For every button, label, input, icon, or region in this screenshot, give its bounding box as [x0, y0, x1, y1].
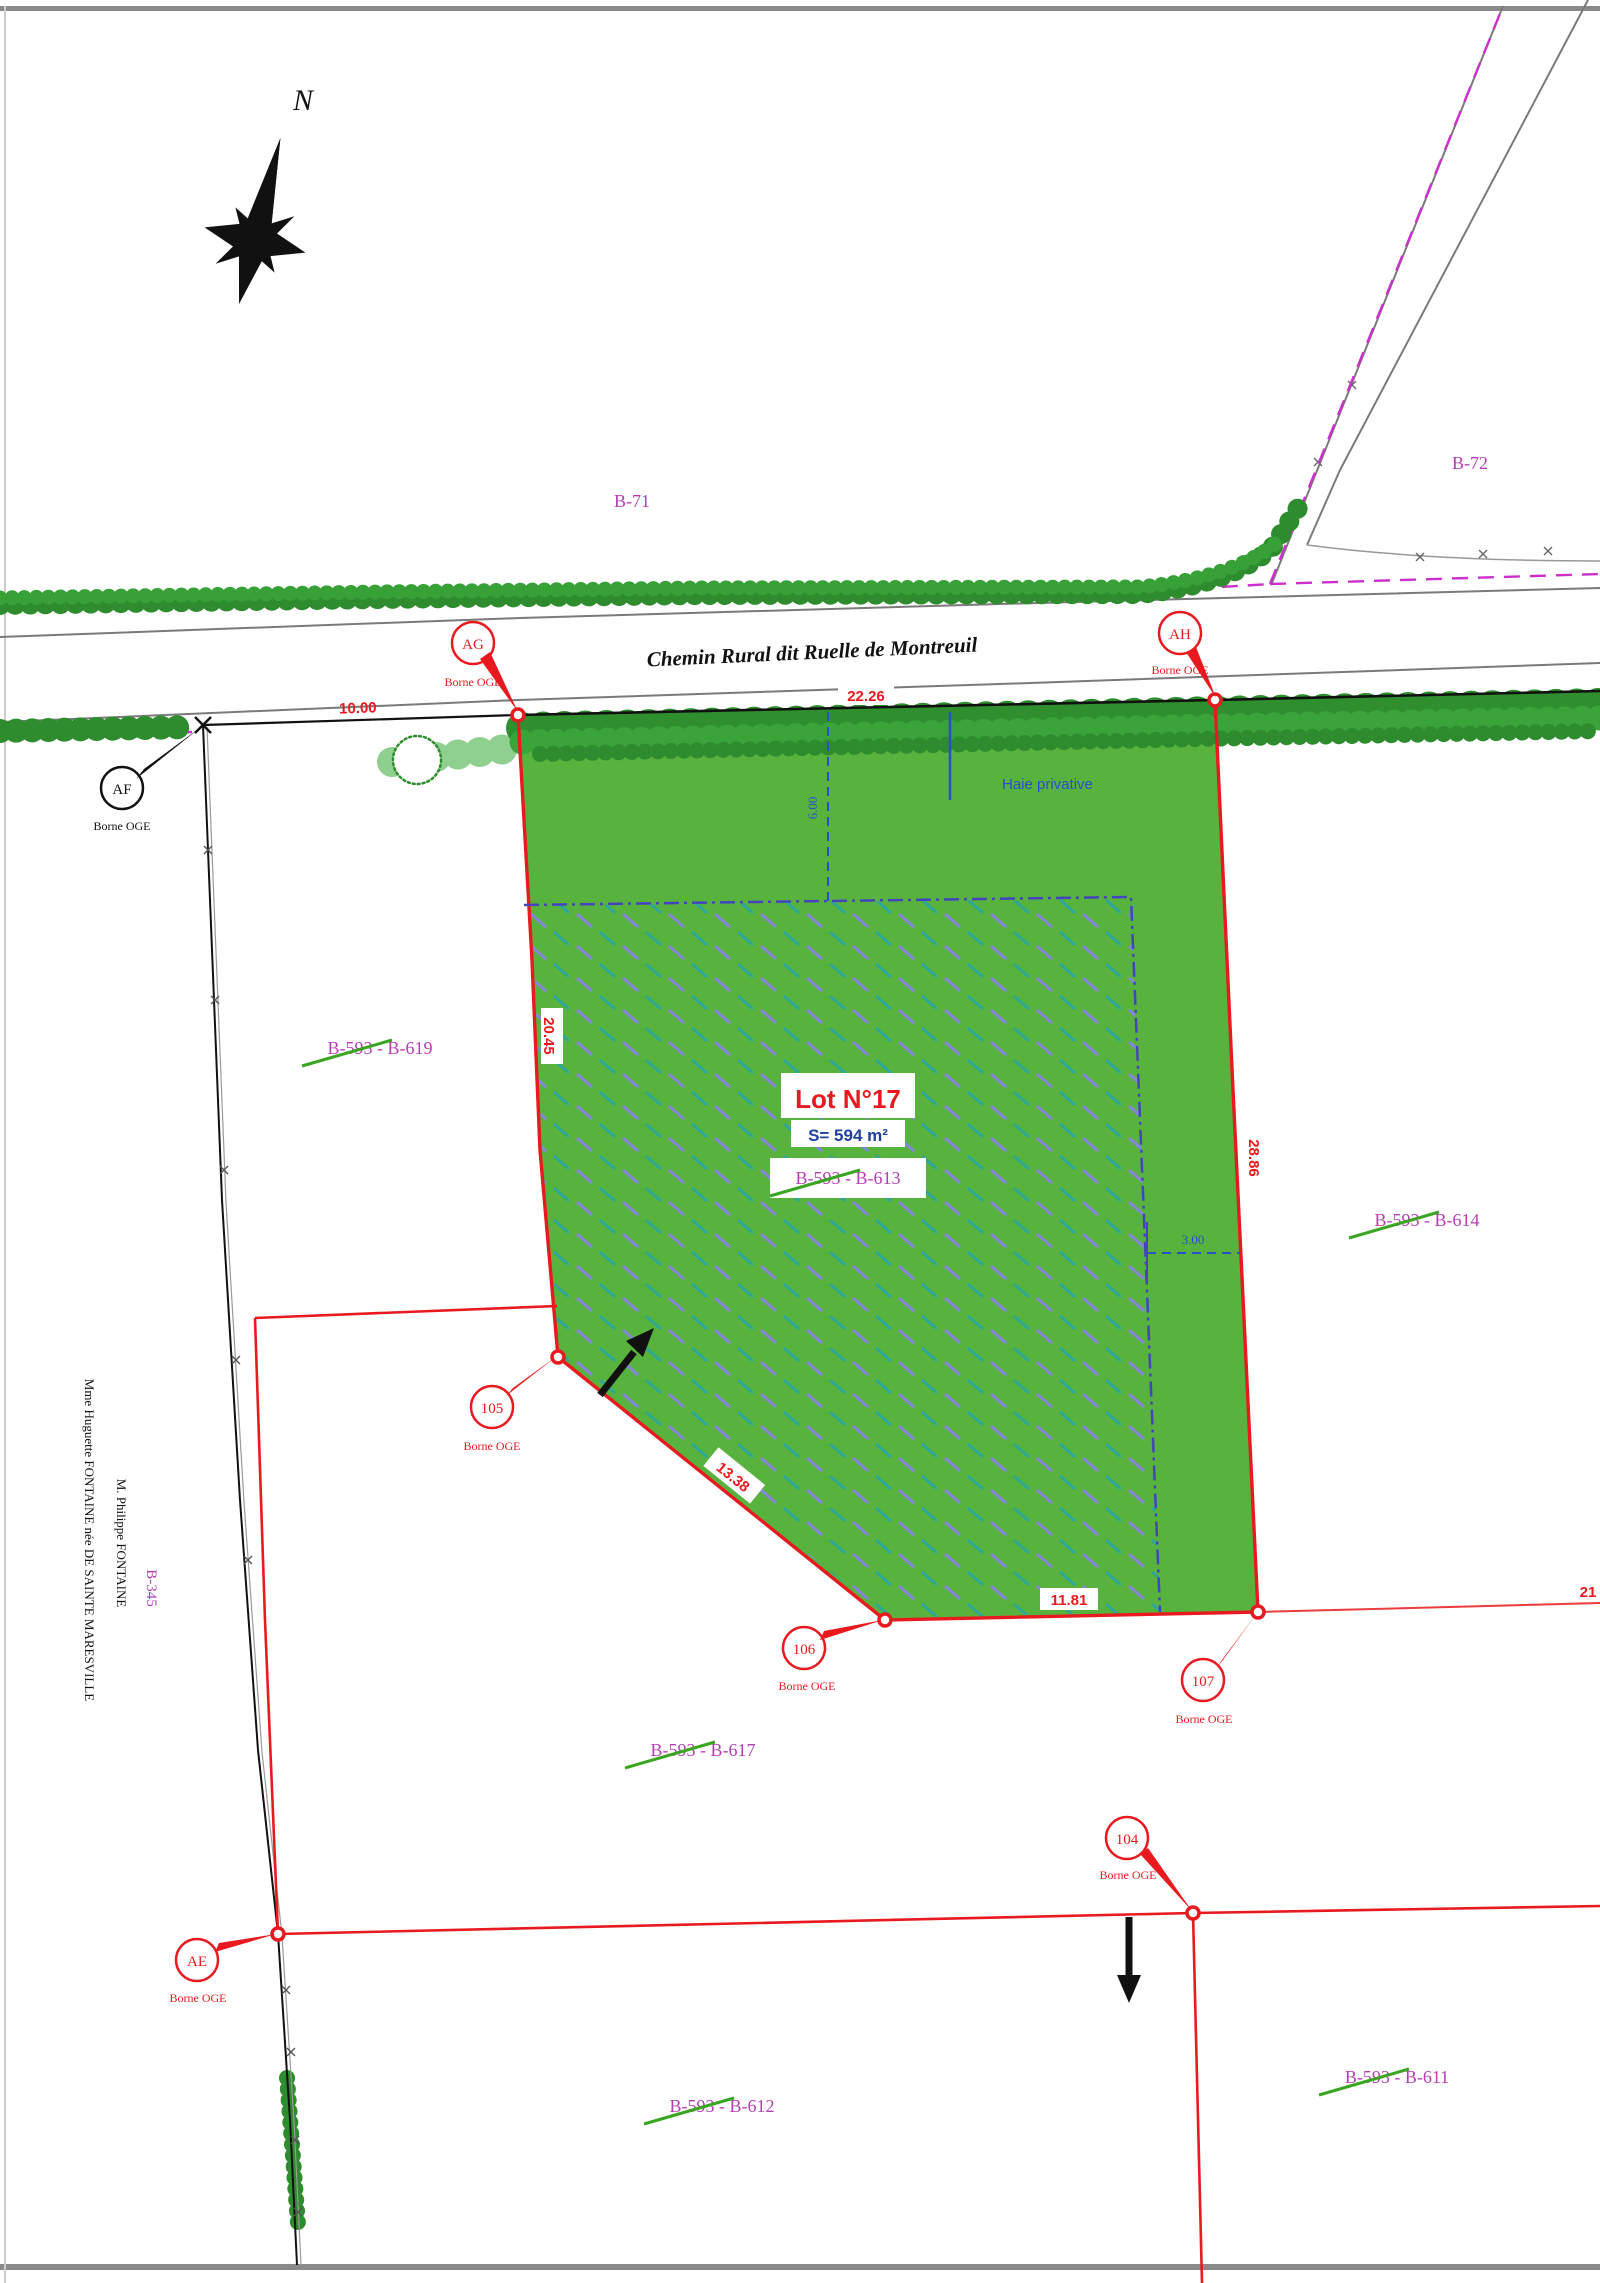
svg-text:Borne OGE: Borne OGE: [445, 675, 502, 689]
hedge-label: Haie privative: [1002, 776, 1093, 793]
measure-3-00: 3.00: [1182, 1232, 1205, 1247]
svg-text:Borne OGE: Borne OGE: [464, 1439, 521, 1453]
zone-b71: B-71: [614, 491, 650, 511]
parcel-b613: B-593 - B-613: [770, 1158, 926, 1198]
svg-text:AH: AH: [1169, 627, 1191, 643]
svg-text:104: 104: [1116, 1832, 1139, 1848]
svg-text:AE: AE: [187, 1954, 207, 1970]
owner-line2: M. Philippe FONTAINE: [114, 1479, 129, 1608]
lot-labels: Lot N°17 S= 594 m²: [781, 1073, 915, 1147]
zone-b72: B-72: [1452, 453, 1488, 473]
measure-28-86: 28.86: [1245, 1139, 1262, 1177]
svg-text:105: 105: [481, 1401, 504, 1417]
svg-text:B-345: B-345: [143, 1569, 159, 1607]
bottom-border: [0, 2264, 1600, 2270]
measure-6-00: 6.00: [805, 797, 820, 820]
top-border: [0, 6, 1600, 11]
svg-text:Borne OGE: Borne OGE: [1152, 663, 1209, 677]
lot-area: S= 594 m²: [808, 1126, 888, 1145]
svg-text:Borne OGE: Borne OGE: [94, 819, 151, 833]
zone-b345: B-345: [143, 1569, 159, 1607]
cadastral-plan: N Chemin Rural dit Ruelle de Montreuil B…: [0, 0, 1600, 2283]
measure-21: 21: [1580, 1584, 1597, 1601]
north-label: N: [292, 84, 315, 117]
measure-20-45: 20.45: [540, 1017, 557, 1055]
svg-text:AG: AG: [462, 637, 484, 653]
svg-text:AF: AF: [112, 782, 131, 798]
svg-text:Borne OGE: Borne OGE: [1100, 1868, 1157, 1882]
measure-11-81: 11.81: [1051, 1592, 1088, 1609]
lot-title: Lot N°17: [795, 1084, 901, 1114]
svg-text:Borne OGE: Borne OGE: [1176, 1712, 1233, 1726]
measure-10-00: 10.00: [339, 699, 377, 717]
owner-line1: Mme Huguette FONTAINE née DE SAINTE MARE…: [82, 1379, 97, 1702]
svg-text:106: 106: [793, 1642, 816, 1658]
svg-text:Borne OGE: Borne OGE: [779, 1679, 836, 1693]
svg-text:107: 107: [1192, 1674, 1215, 1690]
measure-22-26: 22.26: [847, 688, 885, 705]
left-border: [4, 6, 6, 2283]
svg-text:Borne OGE: Borne OGE: [170, 1991, 227, 2005]
